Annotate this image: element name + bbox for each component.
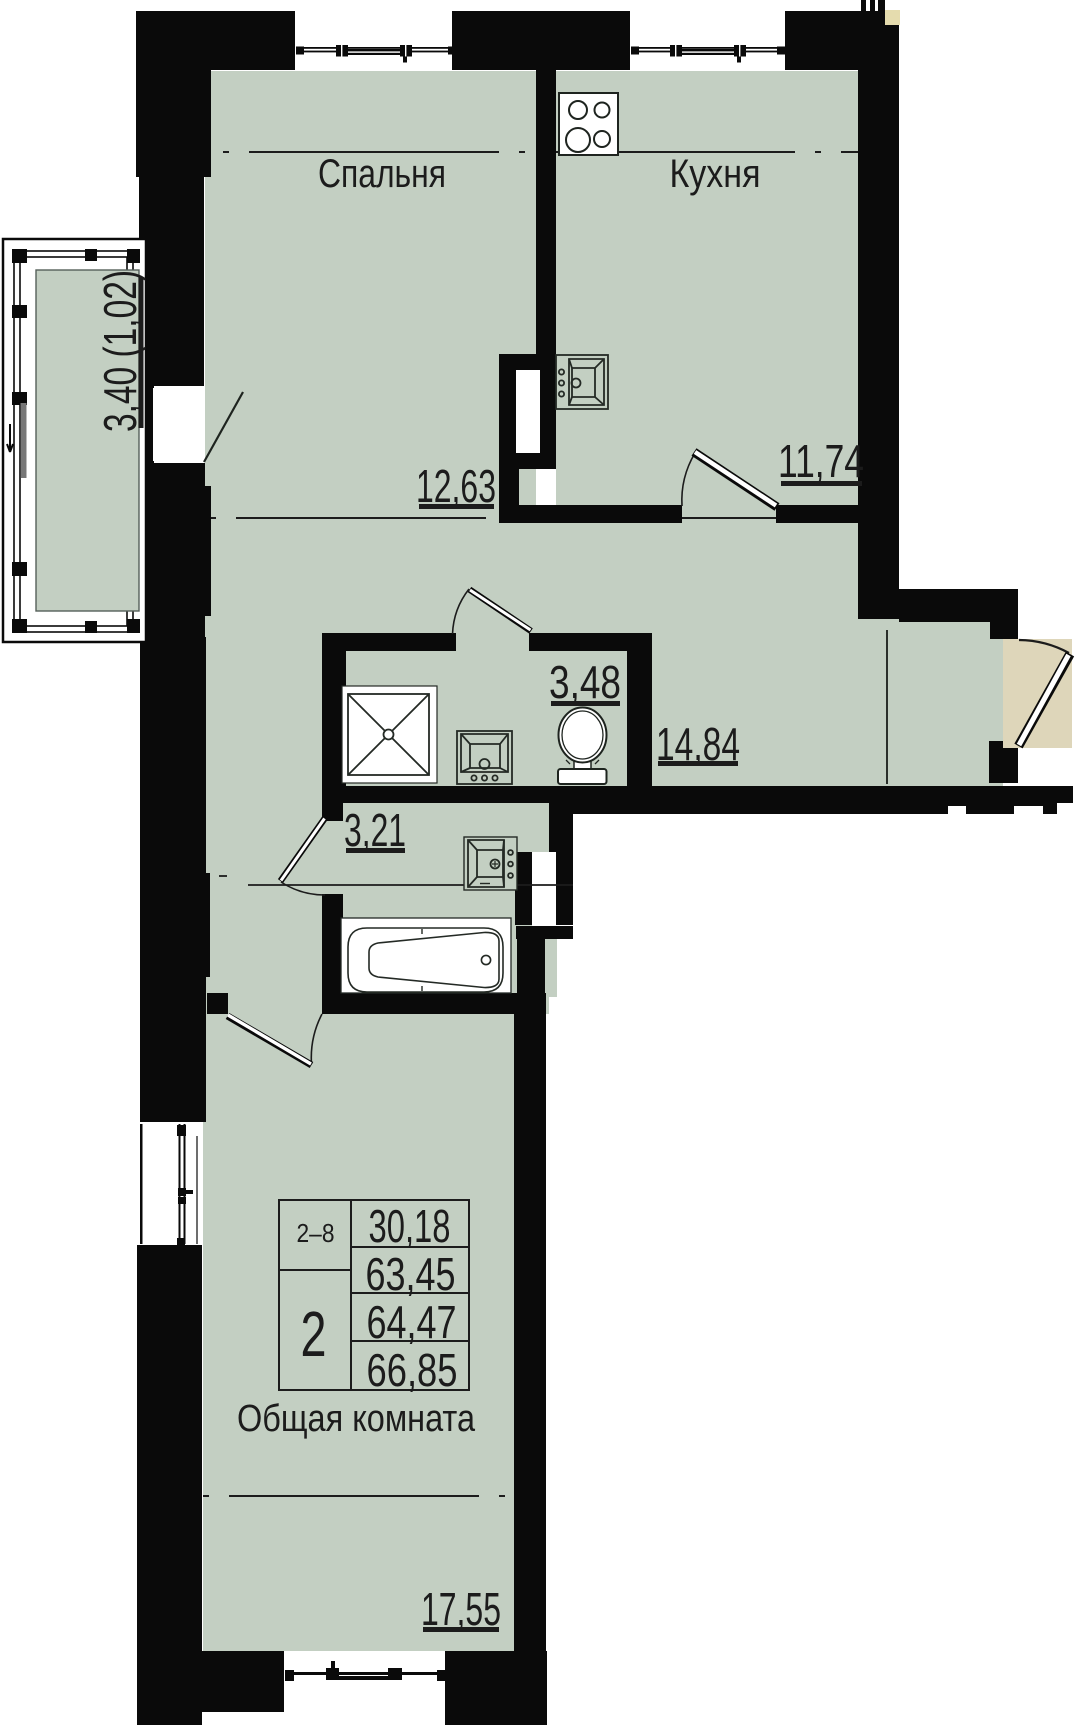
svg-text:30,18: 30,18 — [369, 1200, 451, 1252]
svg-text:3,40 (1,02): 3,40 (1,02) — [94, 270, 146, 432]
svg-text:64,47: 64,47 — [367, 1296, 457, 1348]
svg-text:Кухня: Кухня — [670, 152, 761, 196]
svg-text:11,74: 11,74 — [778, 435, 864, 487]
svg-text:Общая комната: Общая комната — [237, 1398, 476, 1440]
svg-text:2: 2 — [301, 1298, 327, 1370]
svg-text:3,48: 3,48 — [549, 656, 621, 708]
svg-text:66,85: 66,85 — [367, 1344, 458, 1396]
svg-text:63,45: 63,45 — [366, 1248, 456, 1300]
svg-text:Спальня: Спальня — [318, 152, 446, 196]
svg-text:2–8: 2–8 — [297, 1218, 335, 1248]
